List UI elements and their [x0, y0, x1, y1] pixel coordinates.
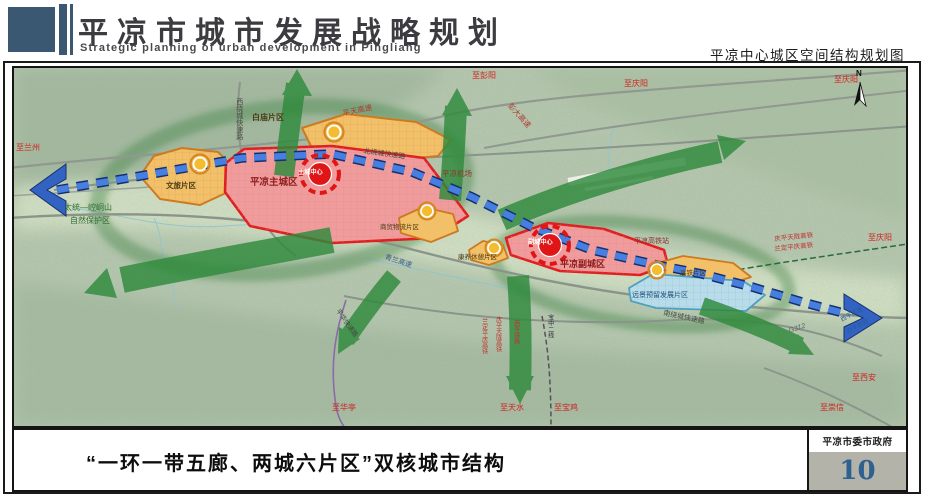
caption-band: “一环一带五廊、两城六片区”双核城市结构 平凉市委市政府 10	[12, 428, 908, 492]
page-info-box: 平凉市委市政府 10	[807, 430, 906, 490]
header-accent-bar-thin	[70, 4, 73, 55]
map-caption: “一环一带五廊、两城六片区”双核城市结构	[86, 447, 506, 476]
map-canvas	[14, 68, 906, 426]
page-subtitle-en: Strategic planning of urban development …	[80, 42, 422, 54]
page-number: 10	[809, 452, 906, 490]
header-accent-bar	[59, 4, 67, 55]
agency-name: 平凉市委市政府	[809, 430, 906, 454]
logo-block	[8, 7, 55, 52]
planning-map: 至兰州西绕城快速路平天高速彭大高速至彭阳至庆阳至庆阳北绕城快速路白庙片区平凉机场…	[12, 66, 908, 428]
